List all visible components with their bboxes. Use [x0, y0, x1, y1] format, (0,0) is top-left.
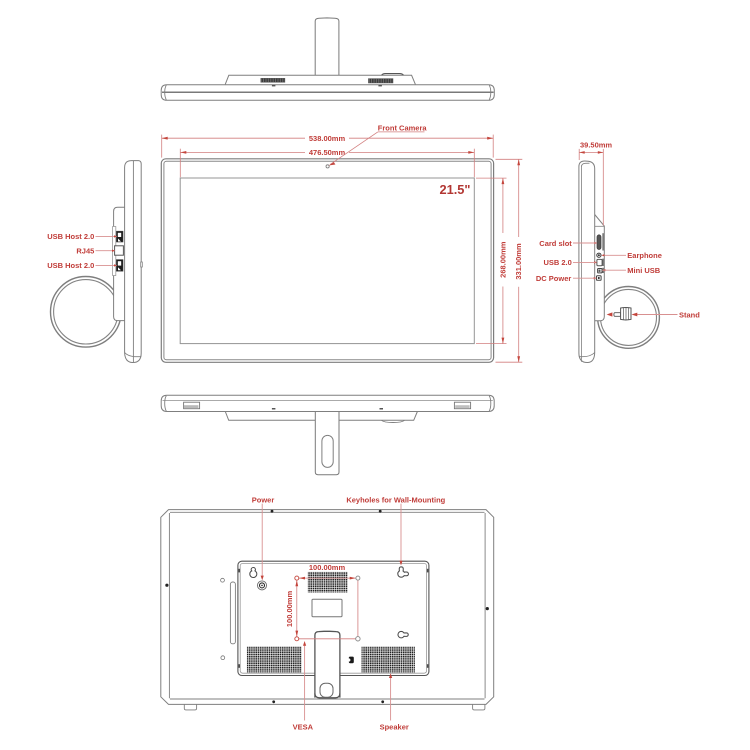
- svg-text:Card slot: Card slot: [539, 239, 572, 248]
- svg-text:USB Host 2.0: USB Host 2.0: [47, 261, 94, 270]
- svg-text:476.50mm: 476.50mm: [309, 148, 346, 157]
- svg-text:268.00mm: 268.00mm: [498, 241, 507, 278]
- svg-text:USB Host 2.0: USB Host 2.0: [47, 232, 94, 241]
- svg-text:331.00mm: 331.00mm: [514, 243, 523, 280]
- svg-text:Speaker: Speaker: [380, 723, 409, 732]
- svg-text:Front Camera: Front Camera: [378, 124, 428, 133]
- svg-text:VESA: VESA: [293, 723, 314, 732]
- svg-text:RJ45: RJ45: [76, 247, 94, 256]
- svg-text:Earphone: Earphone: [627, 251, 662, 260]
- svg-text:Mini USB: Mini USB: [627, 266, 660, 275]
- svg-text:39.50mm: 39.50mm: [580, 140, 612, 149]
- svg-text:Keyholes for Wall-Mounting: Keyholes for Wall-Mounting: [346, 495, 445, 504]
- svg-text:DC Power: DC Power: [536, 274, 572, 283]
- svg-text:538.00mm: 538.00mm: [309, 134, 346, 143]
- svg-text:USB 2.0: USB 2.0: [543, 258, 571, 267]
- svg-text:100.00mm: 100.00mm: [309, 563, 346, 572]
- svg-text:21.5": 21.5": [440, 182, 471, 197]
- svg-text:Power: Power: [252, 495, 275, 504]
- svg-text:100.00mm: 100.00mm: [285, 591, 294, 628]
- svg-text:Stand: Stand: [679, 310, 700, 319]
